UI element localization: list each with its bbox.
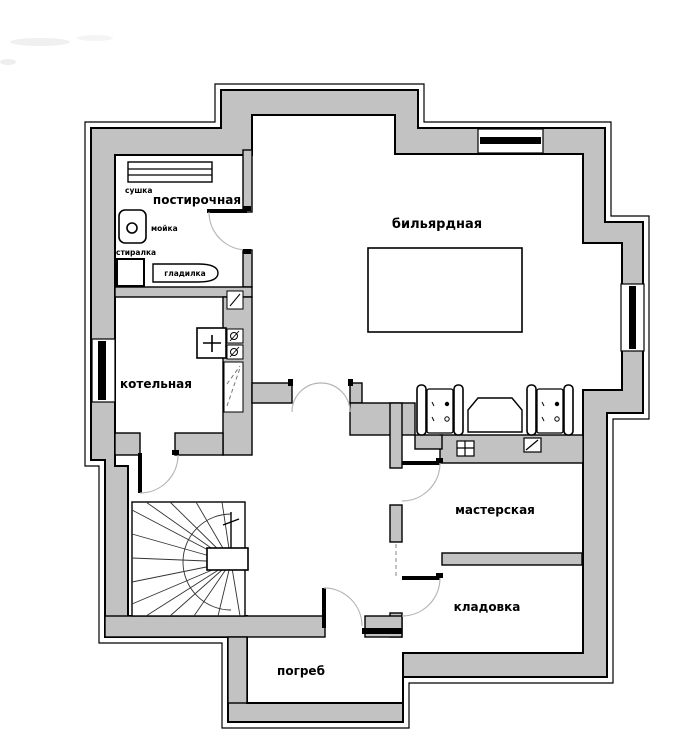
wall-billiard-south-stub (415, 435, 442, 449)
door-boiler (138, 450, 179, 493)
wall-hall-north-step (350, 403, 415, 435)
boiler-unit (197, 328, 226, 358)
door-laundry (207, 206, 251, 254)
wall-hall-east-upper (390, 403, 402, 468)
floor-plan-page: постирочная бильярдная котельная мастерс… (0, 0, 673, 750)
sink (119, 210, 146, 243)
wall-hall-north-left (252, 383, 292, 403)
side-table (468, 398, 522, 432)
window-right (621, 284, 644, 351)
label-workshop: мастерская (455, 503, 535, 517)
wall-hall-south-left (105, 616, 325, 637)
wall-workshop-storage-partition (442, 553, 582, 565)
washing-machine (117, 259, 144, 286)
spiral-stairs (132, 502, 248, 616)
label-laundry: постирочная (153, 193, 241, 207)
floor-plan-drawing: постирочная бильярдная котельная мастерс… (0, 0, 673, 750)
label-billiard: бильярдная (392, 217, 482, 232)
window-top (478, 129, 543, 153)
door-storage (402, 573, 443, 616)
armchair (417, 385, 463, 435)
billiard-table (368, 248, 522, 332)
label-dryer: сушка (125, 186, 152, 195)
wall-laundry-east-lower (243, 250, 252, 287)
label-ironing-board: гладилка (164, 269, 205, 278)
stair-newel (207, 548, 248, 570)
door-workshop (402, 458, 443, 501)
wall-cellar-west (228, 637, 247, 703)
door-billiard-double (288, 379, 353, 412)
label-boiler: котельная (120, 377, 192, 391)
socket-symbol (457, 441, 474, 456)
flue-shaft (224, 362, 243, 412)
label-washer: стиралка (116, 248, 156, 257)
label-sink: мойка (151, 224, 178, 233)
wall-laundry-east-upper (243, 150, 252, 212)
boiler-equipment (197, 291, 243, 412)
armchair (527, 385, 573, 435)
wall-vent-slot (227, 291, 243, 309)
vent-symbol (524, 438, 541, 452)
wall-boiler-south-left (115, 433, 140, 455)
dryer-rack (128, 162, 212, 182)
label-storage: кладовка (454, 600, 521, 614)
wall-hall-east-mid (390, 505, 402, 542)
label-cellar: погреб (277, 664, 325, 678)
wall-boiler-south-right (175, 433, 223, 455)
window-left (92, 339, 115, 402)
paper-smudges (0, 35, 113, 65)
